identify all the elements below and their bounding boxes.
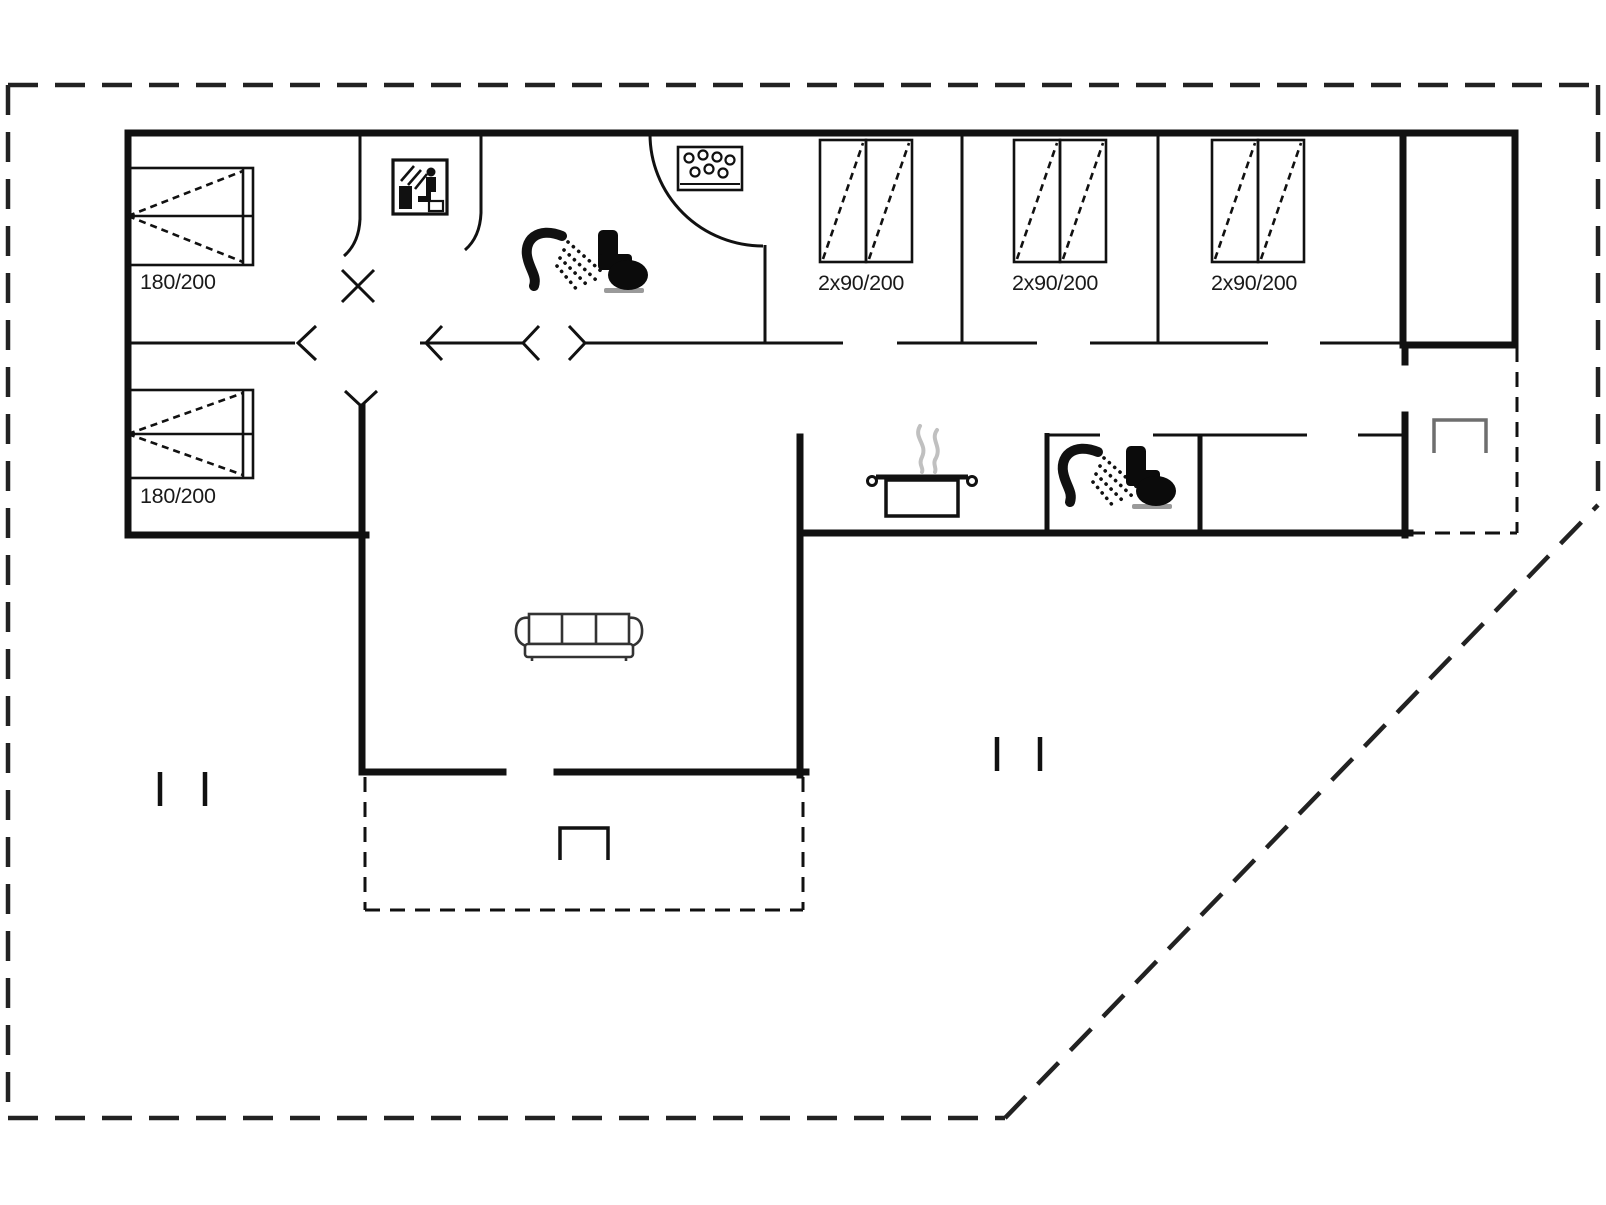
bed-diagonal (128, 393, 243, 434)
pot-handle (868, 477, 877, 486)
shower-hose (527, 233, 562, 286)
door-chevron-bath-left (523, 326, 539, 360)
door-swing-cross (342, 270, 374, 302)
bed-size-label: 180/200 (140, 484, 216, 508)
bed-size-label: 2x90/200 (1012, 271, 1098, 295)
shower-icon (527, 233, 602, 291)
bed-diagonal (128, 171, 243, 216)
bed-size-label: 2x90/200 (1211, 271, 1297, 295)
whirlpool-bubble (713, 153, 722, 162)
whirlpool-bubble (699, 151, 708, 160)
toilet-icon (1126, 446, 1176, 509)
pot-handle (968, 477, 977, 486)
shower-spray (1096, 474, 1124, 502)
sofa-cushions (529, 614, 629, 644)
bunk-diagonal (869, 143, 909, 259)
door-leaf-sauna (465, 213, 481, 250)
bunk-diagonal (1261, 143, 1301, 259)
door-leaf-bedroom-a (344, 219, 360, 256)
shower-spray (560, 258, 588, 286)
boundary-diagonal (1005, 505, 1598, 1118)
sauna-stove (399, 186, 412, 209)
shower-spray (568, 242, 602, 272)
double-bed-icon (128, 168, 253, 265)
steam-line (934, 430, 937, 472)
whirlpool-bubble (685, 154, 694, 163)
double-bed-icon (128, 390, 253, 478)
whirlpool-bubble (691, 168, 700, 177)
floor-plan-drawing: 180/200 180/200 2x90/200 2x90/200 2x90/2… (0, 0, 1606, 1205)
cooking-pot-icon (868, 426, 977, 516)
bed-size-label: 2x90/200 (818, 271, 904, 295)
bunk-beds-icon (1014, 140, 1106, 262)
wall-left-wing (128, 133, 366, 535)
steam-line (918, 426, 923, 472)
shower-hose (1063, 449, 1098, 502)
sofa-icon (516, 614, 642, 661)
whirlpool-bubble (726, 156, 735, 165)
pot-body (886, 480, 958, 516)
bunk-beds-icon (1212, 140, 1304, 262)
step-icon (560, 828, 608, 860)
toilet-bowl (1136, 476, 1176, 506)
sauna-person-head (427, 168, 436, 177)
toilet-icon (598, 230, 648, 293)
bunk-diagonal (1063, 143, 1103, 259)
whirlpool-icon (678, 147, 742, 190)
wall-living-left (362, 407, 503, 772)
exterior-walls (128, 133, 1515, 775)
shower-spray (1093, 482, 1114, 507)
whirlpool-bubble (719, 169, 728, 178)
shower-spray (564, 250, 596, 280)
bunk-diagonal (823, 143, 863, 259)
step-icon (1434, 420, 1486, 453)
door-chevron-bath-right (569, 326, 585, 360)
bunk-diagonal (1017, 143, 1057, 259)
bed-diagonal (128, 216, 243, 262)
sofa-seat-front (525, 644, 633, 657)
shower-spray (557, 266, 578, 291)
toilet-bowl (608, 260, 648, 290)
bunk-diagonal (1215, 143, 1255, 259)
sauna-icon (393, 160, 447, 214)
door-chevron-bedroom-b (298, 326, 316, 360)
floor-plan-page: 180/200 180/200 2x90/200 2x90/200 2x90/2… (0, 0, 1606, 1205)
bed-diagonal (128, 434, 243, 475)
bed-size-label: 180/200 (140, 270, 216, 294)
wall-top-right-wing (128, 133, 1515, 345)
bunk-beds-icon (820, 140, 912, 262)
whirlpool-bubble (705, 165, 714, 174)
sauna-bench (429, 201, 443, 211)
